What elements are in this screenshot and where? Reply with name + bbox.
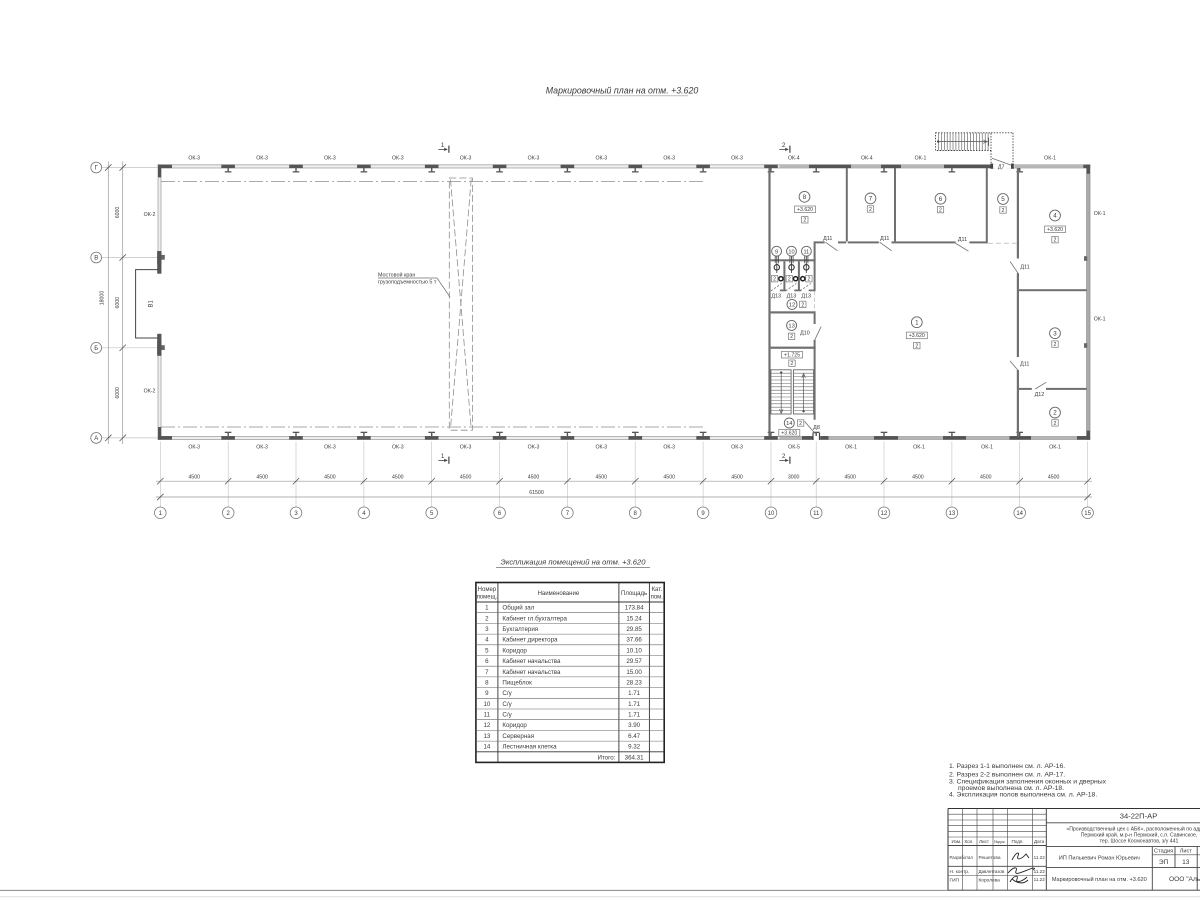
svg-text:173.84: 173.84 — [625, 605, 644, 612]
svg-text:ОК-3: ОК-3 — [324, 155, 336, 161]
svg-text:11.22: 11.22 — [1034, 869, 1046, 874]
svg-text:Кабинет директора: Кабинет директора — [502, 637, 558, 644]
svg-text:364.31: 364.31 — [625, 755, 644, 762]
svg-text:15: 15 — [1084, 511, 1091, 517]
svg-text:+1.725: +1.725 — [784, 353, 800, 359]
svg-text:ООО "Альмакс": ООО "Альмакс" — [1169, 876, 1200, 883]
svg-text:11.22: 11.22 — [1034, 855, 1046, 860]
svg-text:Д11: Д11 — [958, 237, 967, 243]
svg-text:10: 10 — [483, 701, 490, 708]
svg-text:4500: 4500 — [324, 474, 336, 480]
svg-text:Д11: Д11 — [823, 236, 832, 242]
svg-text:2: 2 — [1054, 421, 1057, 427]
svg-text:ОК-3: ОК-3 — [528, 445, 540, 451]
svg-text:1.71: 1.71 — [628, 701, 641, 708]
svg-text:Коридор: Коридор — [502, 647, 527, 654]
svg-text:2: 2 — [1054, 238, 1057, 244]
svg-text:ОК-4: ОК-4 — [861, 155, 873, 161]
svg-text:4500: 4500 — [392, 474, 404, 480]
svg-text:4500: 4500 — [256, 474, 268, 480]
svg-text:Кол.: Кол. — [965, 839, 974, 844]
svg-text:8: 8 — [803, 194, 807, 201]
svg-text:14: 14 — [483, 744, 490, 751]
svg-text:14: 14 — [786, 421, 793, 427]
svg-text:29.85: 29.85 — [626, 626, 642, 633]
svg-text:ОК-5: ОК-5 — [788, 445, 800, 451]
svg-text:13: 13 — [483, 733, 490, 740]
svg-text:Кабинет гл.бухгалтера: Кабинет гл.бухгалтера — [502, 615, 567, 622]
svg-text:ОК-3: ОК-3 — [528, 155, 540, 161]
svg-text:Н. контр.: Н. контр. — [950, 869, 970, 875]
svg-text:4500: 4500 — [596, 474, 608, 480]
svg-text:Площадь: Площадь — [621, 591, 647, 597]
svg-text:Д10: Д10 — [800, 330, 810, 336]
svg-text:Пищеблок: Пищеблок — [502, 680, 532, 687]
svg-text:4500: 4500 — [460, 474, 472, 480]
svg-text:В1: В1 — [149, 299, 155, 307]
svg-text:6: 6 — [939, 196, 943, 203]
svg-text:4500: 4500 — [731, 474, 743, 480]
svg-text:ОК-1: ОК-1 — [1044, 155, 1056, 161]
svg-text:ОК-4: ОК-4 — [788, 155, 800, 161]
svg-text:7: 7 — [485, 669, 489, 676]
svg-text:13: 13 — [1182, 859, 1190, 866]
svg-text:ОК-2: ОК-2 — [144, 212, 156, 218]
svg-text:Общий зал: Общий зал — [502, 605, 534, 612]
svg-text:ОК-3: ОК-3 — [188, 155, 200, 161]
svg-text:Д13: Д13 — [801, 293, 811, 299]
svg-text:ОК-1: ОК-1 — [981, 445, 993, 451]
svg-text:2: 2 — [803, 218, 806, 224]
svg-text:Д8: Д8 — [813, 425, 820, 431]
svg-text:2: 2 — [782, 453, 786, 460]
svg-text:С/у: С/у — [502, 701, 512, 708]
svg-text:ИП Пилькевич Роман Юрьевич: ИП Пилькевич Роман Юрьевич — [1059, 856, 1140, 862]
svg-text:Кат.: Кат. — [652, 587, 663, 593]
svg-text:14: 14 — [1016, 511, 1023, 517]
svg-text:2: 2 — [1054, 342, 1057, 348]
svg-text:2: 2 — [791, 361, 794, 367]
svg-text:10: 10 — [788, 249, 794, 255]
svg-text:4500: 4500 — [188, 474, 200, 480]
svg-text:12: 12 — [789, 303, 795, 309]
svg-text:4500: 4500 — [663, 474, 675, 480]
svg-text:6.47: 6.47 — [628, 733, 641, 740]
svg-text:28.23: 28.23 — [626, 680, 642, 687]
svg-text:Давлетгазов: Давлетгазов — [979, 869, 1005, 874]
svg-text:12: 12 — [881, 511, 888, 517]
svg-text:5: 5 — [1001, 196, 1005, 203]
svg-text:5: 5 — [485, 647, 489, 654]
svg-text:11: 11 — [803, 249, 809, 255]
svg-text:ЭП: ЭП — [1159, 859, 1169, 866]
svg-text:4: 4 — [485, 637, 489, 644]
svg-text:Итого:: Итого: — [597, 755, 615, 762]
svg-text:11.22: 11.22 — [1034, 877, 1046, 882]
svg-text:4: 4 — [1053, 213, 1057, 220]
svg-text:Бухгалтерия: Бухгалтерия — [502, 626, 538, 633]
svg-text:Кабинет начальства: Кабинет начальства — [502, 658, 561, 665]
svg-text:2: 2 — [790, 334, 793, 340]
svg-text:3: 3 — [1053, 330, 1057, 337]
svg-text:2: 2 — [788, 277, 791, 283]
svg-text:Маркировочный план на отм. +3.: Маркировочный план на отм. +3.620 — [1052, 876, 1147, 883]
svg-text:Экспликация помещений на отм.: Экспликация помещений на отм. +3.620 — [501, 558, 647, 567]
svg-text:ОК-3: ОК-3 — [731, 445, 743, 451]
svg-text:ОК-1: ОК-1 — [913, 445, 925, 451]
svg-text:ОК-3: ОК-3 — [392, 155, 404, 161]
svg-text:ОК-3: ОК-3 — [324, 445, 336, 451]
svg-text:Кабинет начальства: Кабинет начальства — [502, 669, 561, 676]
svg-text:4500: 4500 — [528, 474, 540, 480]
svg-text:2: 2 — [1053, 410, 1057, 417]
svg-text:2: 2 — [807, 277, 810, 283]
svg-text:ОК-3: ОК-3 — [392, 445, 404, 451]
svg-text:6000: 6000 — [115, 207, 121, 219]
svg-text:ОК-3: ОК-3 — [188, 445, 200, 451]
svg-text:2: 2 — [485, 615, 489, 622]
svg-text:Разработал: Разработал — [950, 855, 974, 860]
svg-text:15.24: 15.24 — [626, 615, 642, 622]
svg-text:Дата: Дата — [1034, 839, 1045, 844]
svg-text:Д11: Д11 — [880, 236, 889, 242]
svg-text:ОК-3: ОК-3 — [460, 155, 472, 161]
svg-text:Изм.: Изм. — [952, 839, 962, 844]
svg-text:2: 2 — [1002, 208, 1005, 214]
svg-text:№док.: №док. — [994, 839, 1006, 844]
svg-text:С/у: С/у — [502, 712, 512, 719]
svg-text:+3.620: +3.620 — [909, 333, 925, 339]
svg-text:пом.: пом. — [651, 595, 664, 601]
svg-text:6000: 6000 — [115, 297, 121, 309]
svg-text:В: В — [94, 256, 98, 262]
svg-text:Д13: Д13 — [787, 293, 797, 299]
svg-text:грузоподъемностью 5 т: грузоподъемностью 5 т — [378, 280, 437, 286]
svg-text:Наименование: Наименование — [538, 591, 580, 597]
svg-text:2: 2 — [869, 207, 872, 213]
svg-text:6000: 6000 — [115, 387, 121, 399]
svg-text:ОК-3: ОК-3 — [663, 445, 675, 451]
svg-text:ОК-3: ОК-3 — [731, 155, 743, 161]
svg-text:1.71: 1.71 — [628, 690, 641, 697]
svg-text:Подп.: Подп. — [1012, 839, 1024, 844]
svg-text:9.32: 9.32 — [628, 744, 641, 751]
svg-text:ОК-1: ОК-1 — [1094, 316, 1106, 322]
svg-text:6: 6 — [485, 658, 489, 665]
svg-text:1. Разрез 1-1 выполнен см. л.: 1. Разрез 1-1 выполнен см. л. АР-16. — [949, 763, 1065, 770]
svg-text:А: А — [94, 436, 98, 442]
svg-text:ГИП: ГИП — [950, 877, 960, 883]
svg-text:61500: 61500 — [529, 490, 544, 496]
svg-text:2: 2 — [773, 277, 776, 283]
svg-text:18000: 18000 — [100, 291, 106, 306]
svg-text:34-22П-АР: 34-22П-АР — [1120, 811, 1158, 820]
svg-text:2: 2 — [939, 208, 942, 214]
svg-text:Номер: Номер — [478, 587, 497, 593]
svg-text:Маркировочный план на отм. +3: Маркировочный план на отм. +3.620 — [546, 85, 699, 95]
svg-text:ОК-3: ОК-3 — [595, 445, 607, 451]
svg-text:Лестничная клетка: Лестничная клетка — [502, 744, 557, 751]
svg-text:Д12: Д12 — [1035, 392, 1045, 398]
svg-text:ОК-3: ОК-3 — [595, 155, 607, 161]
svg-text:ОК-3: ОК-3 — [256, 155, 268, 161]
svg-text:11: 11 — [813, 511, 820, 517]
svg-text:Д7: Д7 — [998, 164, 1005, 170]
svg-text:+3.620: +3.620 — [781, 431, 797, 437]
svg-text:11: 11 — [484, 712, 491, 719]
svg-text:ОК-1: ОК-1 — [845, 445, 857, 451]
svg-text:13: 13 — [949, 511, 956, 517]
svg-text:8: 8 — [485, 680, 489, 687]
svg-text:7: 7 — [869, 196, 873, 203]
svg-text:Д13: Д13 — [771, 293, 781, 299]
svg-text:ОК-1: ОК-1 — [1049, 445, 1061, 451]
svg-text:1: 1 — [485, 605, 489, 612]
svg-text:1: 1 — [441, 453, 445, 460]
svg-text:Д11: Д11 — [1020, 362, 1029, 368]
svg-text:ОК-2: ОК-2 — [144, 389, 156, 395]
svg-text:3: 3 — [485, 626, 489, 633]
svg-text:Стадия: Стадия — [1154, 849, 1173, 855]
svg-text:ОК-3: ОК-3 — [663, 155, 675, 161]
svg-text:Б: Б — [94, 346, 98, 352]
svg-text:ОК-3: ОК-3 — [460, 445, 472, 451]
svg-text:Д11: Д11 — [1020, 264, 1029, 270]
svg-text:1.71: 1.71 — [628, 712, 641, 719]
svg-text:15.00: 15.00 — [626, 669, 642, 676]
svg-text:37.66: 37.66 — [626, 637, 642, 644]
svg-text:тер. Шоссе Космонавтов, з/у 44: тер. Шоссе Космонавтов, з/у 441 — [1100, 838, 1179, 844]
svg-text:+3.620: +3.620 — [797, 207, 813, 213]
svg-text:1: 1 — [915, 319, 919, 326]
svg-text:29.57: 29.57 — [626, 658, 642, 665]
svg-text:2: 2 — [799, 421, 802, 427]
svg-text:С/у: С/у — [502, 690, 512, 697]
svg-text:2: 2 — [801, 302, 804, 308]
svg-text:10.10: 10.10 — [626, 647, 642, 654]
svg-text:4500: 4500 — [912, 474, 924, 480]
svg-text:ОК-1: ОК-1 — [915, 155, 927, 161]
svg-text:Королева: Королева — [979, 877, 1001, 883]
svg-text:12: 12 — [483, 722, 490, 729]
svg-text:10: 10 — [768, 511, 775, 517]
svg-text:2: 2 — [915, 344, 918, 350]
svg-text:13: 13 — [788, 324, 794, 330]
svg-text:Мостовой кран: Мостовой кран — [378, 271, 415, 278]
svg-text:Лист: Лист — [1180, 849, 1193, 855]
svg-text:4500: 4500 — [980, 474, 992, 480]
svg-text:ОК-3: ОК-3 — [256, 445, 268, 451]
svg-text:4. Экспликация полов выполнена: 4. Экспликация полов выполнена см. л. АР… — [949, 792, 1097, 799]
svg-text:3000: 3000 — [788, 474, 800, 480]
svg-text:«Производственный цех с АБК»,: «Производственный цех с АБК», расположен… — [1066, 826, 1200, 833]
svg-text:ОК-1: ОК-1 — [1094, 211, 1106, 217]
svg-text:+3.620: +3.620 — [1047, 227, 1063, 233]
svg-text:Коридор: Коридор — [502, 722, 527, 729]
svg-text:4500: 4500 — [844, 474, 856, 480]
svg-text:9: 9 — [485, 690, 489, 697]
svg-text:Решетова: Решетова — [979, 855, 1001, 861]
svg-text:4500: 4500 — [1048, 474, 1060, 480]
svg-text:Серверная: Серверная — [502, 733, 534, 740]
svg-text:3.90: 3.90 — [628, 722, 641, 729]
svg-text:9: 9 — [775, 249, 778, 255]
svg-text:Лист: Лист — [979, 839, 990, 844]
svg-text:помещ.: помещ. — [477, 595, 498, 601]
